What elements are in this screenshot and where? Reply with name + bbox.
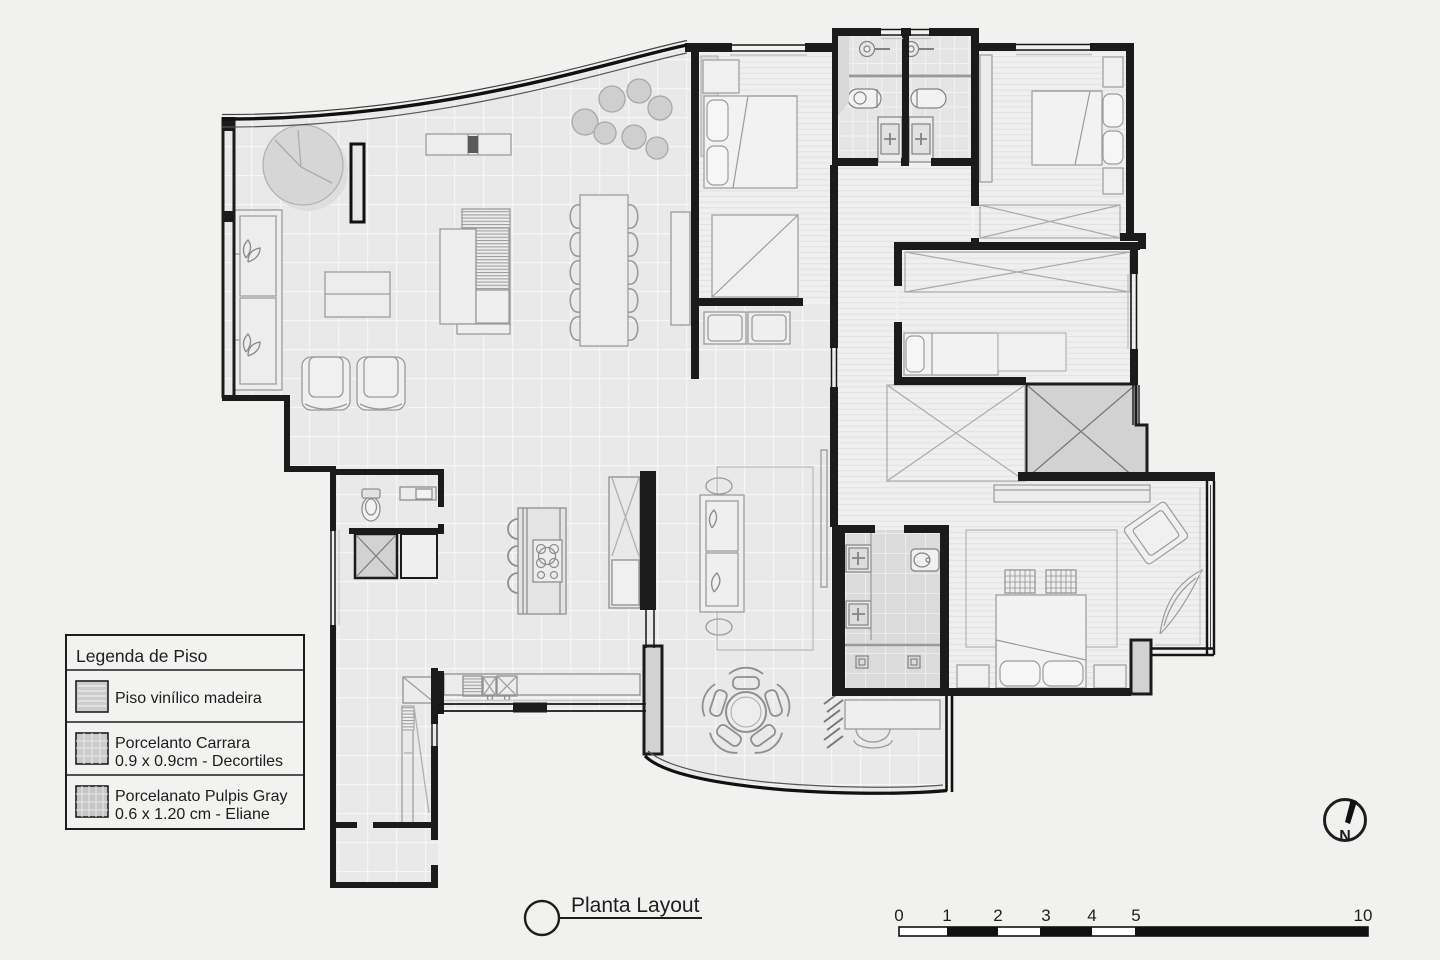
svg-text:0.9 x 0.9cm - Decortiles: 0.9 x 0.9cm - Decortiles bbox=[115, 753, 283, 770]
svg-text:10: 10 bbox=[1354, 906, 1373, 925]
svg-text:1: 1 bbox=[942, 906, 951, 925]
svg-text:Porcelanto Carrara: Porcelanto Carrara bbox=[115, 735, 250, 752]
svg-text:0: 0 bbox=[894, 906, 903, 925]
svg-text:Planta Layout: Planta Layout bbox=[571, 894, 700, 917]
svg-text:0.6 x 1.20 cm - Eliane: 0.6 x 1.20 cm - Eliane bbox=[115, 806, 270, 823]
svg-text:2: 2 bbox=[993, 906, 1002, 925]
svg-text:Legenda de Piso: Legenda de Piso bbox=[76, 646, 207, 666]
svg-text:3: 3 bbox=[1041, 906, 1050, 925]
svg-text:5: 5 bbox=[1131, 906, 1140, 925]
svg-text:Porcelanato Pulpis Gray: Porcelanato Pulpis Gray bbox=[115, 788, 288, 805]
svg-text:4: 4 bbox=[1087, 906, 1096, 925]
svg-text:N: N bbox=[1339, 828, 1351, 845]
svg-text:Piso vinílico madeira: Piso vinílico madeira bbox=[115, 690, 262, 707]
